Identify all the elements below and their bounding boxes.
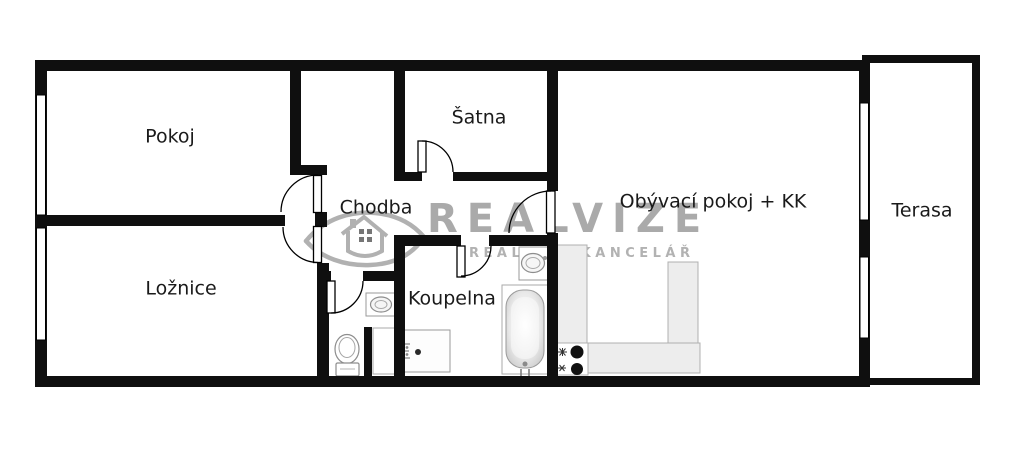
room-label-koupelna: Koupelna bbox=[408, 289, 496, 310]
room-label-terasa: Terasa bbox=[891, 201, 952, 222]
room-label-loznice: Ložnice bbox=[145, 279, 216, 300]
room-label-pokoj: Pokoj bbox=[145, 127, 195, 148]
room-labels: Pokoj Šatna Chodba Ložnice Koupelna Obýv… bbox=[0, 0, 1024, 461]
room-label-satna: Šatna bbox=[452, 108, 507, 129]
room-label-obyvaci-pokoj-kk: Obývací pokoj + KK bbox=[620, 192, 807, 213]
floor-plan: REALVIZE REALITNÍ KANCELÁŘ bbox=[0, 0, 1024, 461]
room-label-chodba: Chodba bbox=[340, 198, 413, 219]
